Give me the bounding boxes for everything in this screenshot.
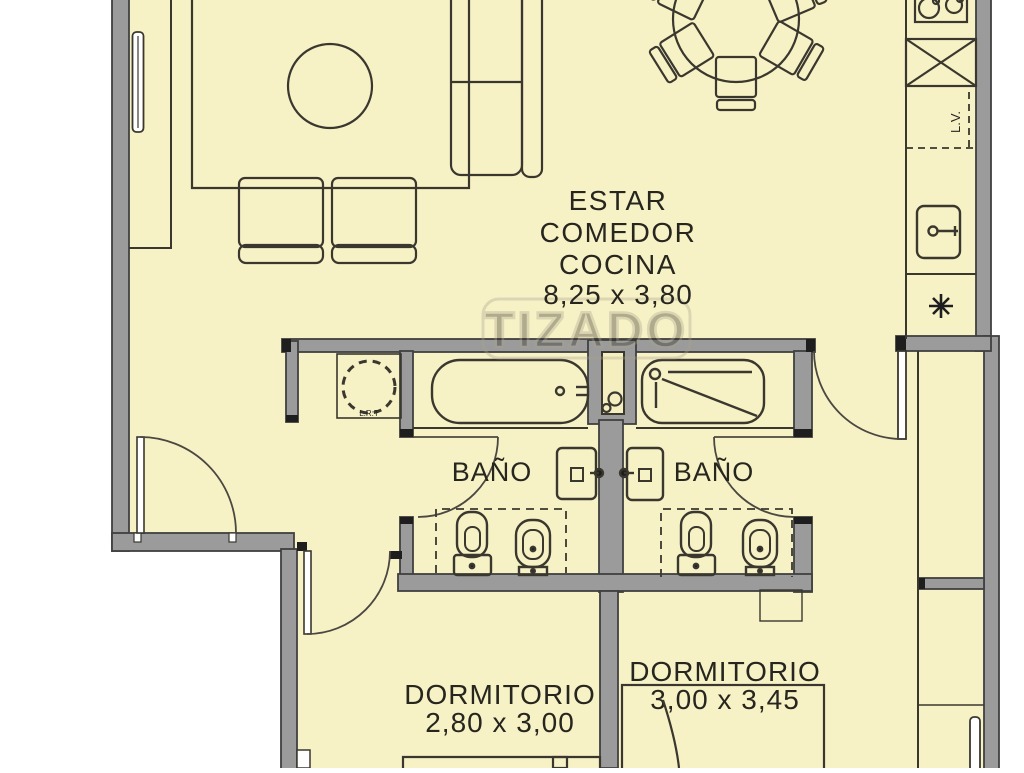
svg-text:COMEDOR: COMEDOR [540, 217, 697, 248]
svg-text:3,00 x 3,45: 3,00 x 3,45 [650, 684, 800, 715]
svg-text:BAÑO: BAÑO [674, 456, 755, 487]
svg-text:DORMITORIO: DORMITORIO [404, 679, 595, 710]
svg-text:DORMITORIO: DORMITORIO [629, 656, 820, 687]
svg-text:8,25 x 3,80: 8,25 x 3,80 [543, 279, 693, 310]
svg-text:ESTAR: ESTAR [569, 185, 668, 216]
svg-text:2,80 x 3,00: 2,80 x 3,00 [425, 707, 575, 738]
svg-text:L.V.: L.V. [948, 111, 963, 133]
svg-text:COCINA: COCINA [559, 249, 677, 280]
svg-text:BAÑO: BAÑO [452, 456, 533, 487]
svg-text:TIZADO: TIZADO [484, 302, 688, 358]
svg-text:L.R:T: L.R:T [359, 409, 379, 418]
